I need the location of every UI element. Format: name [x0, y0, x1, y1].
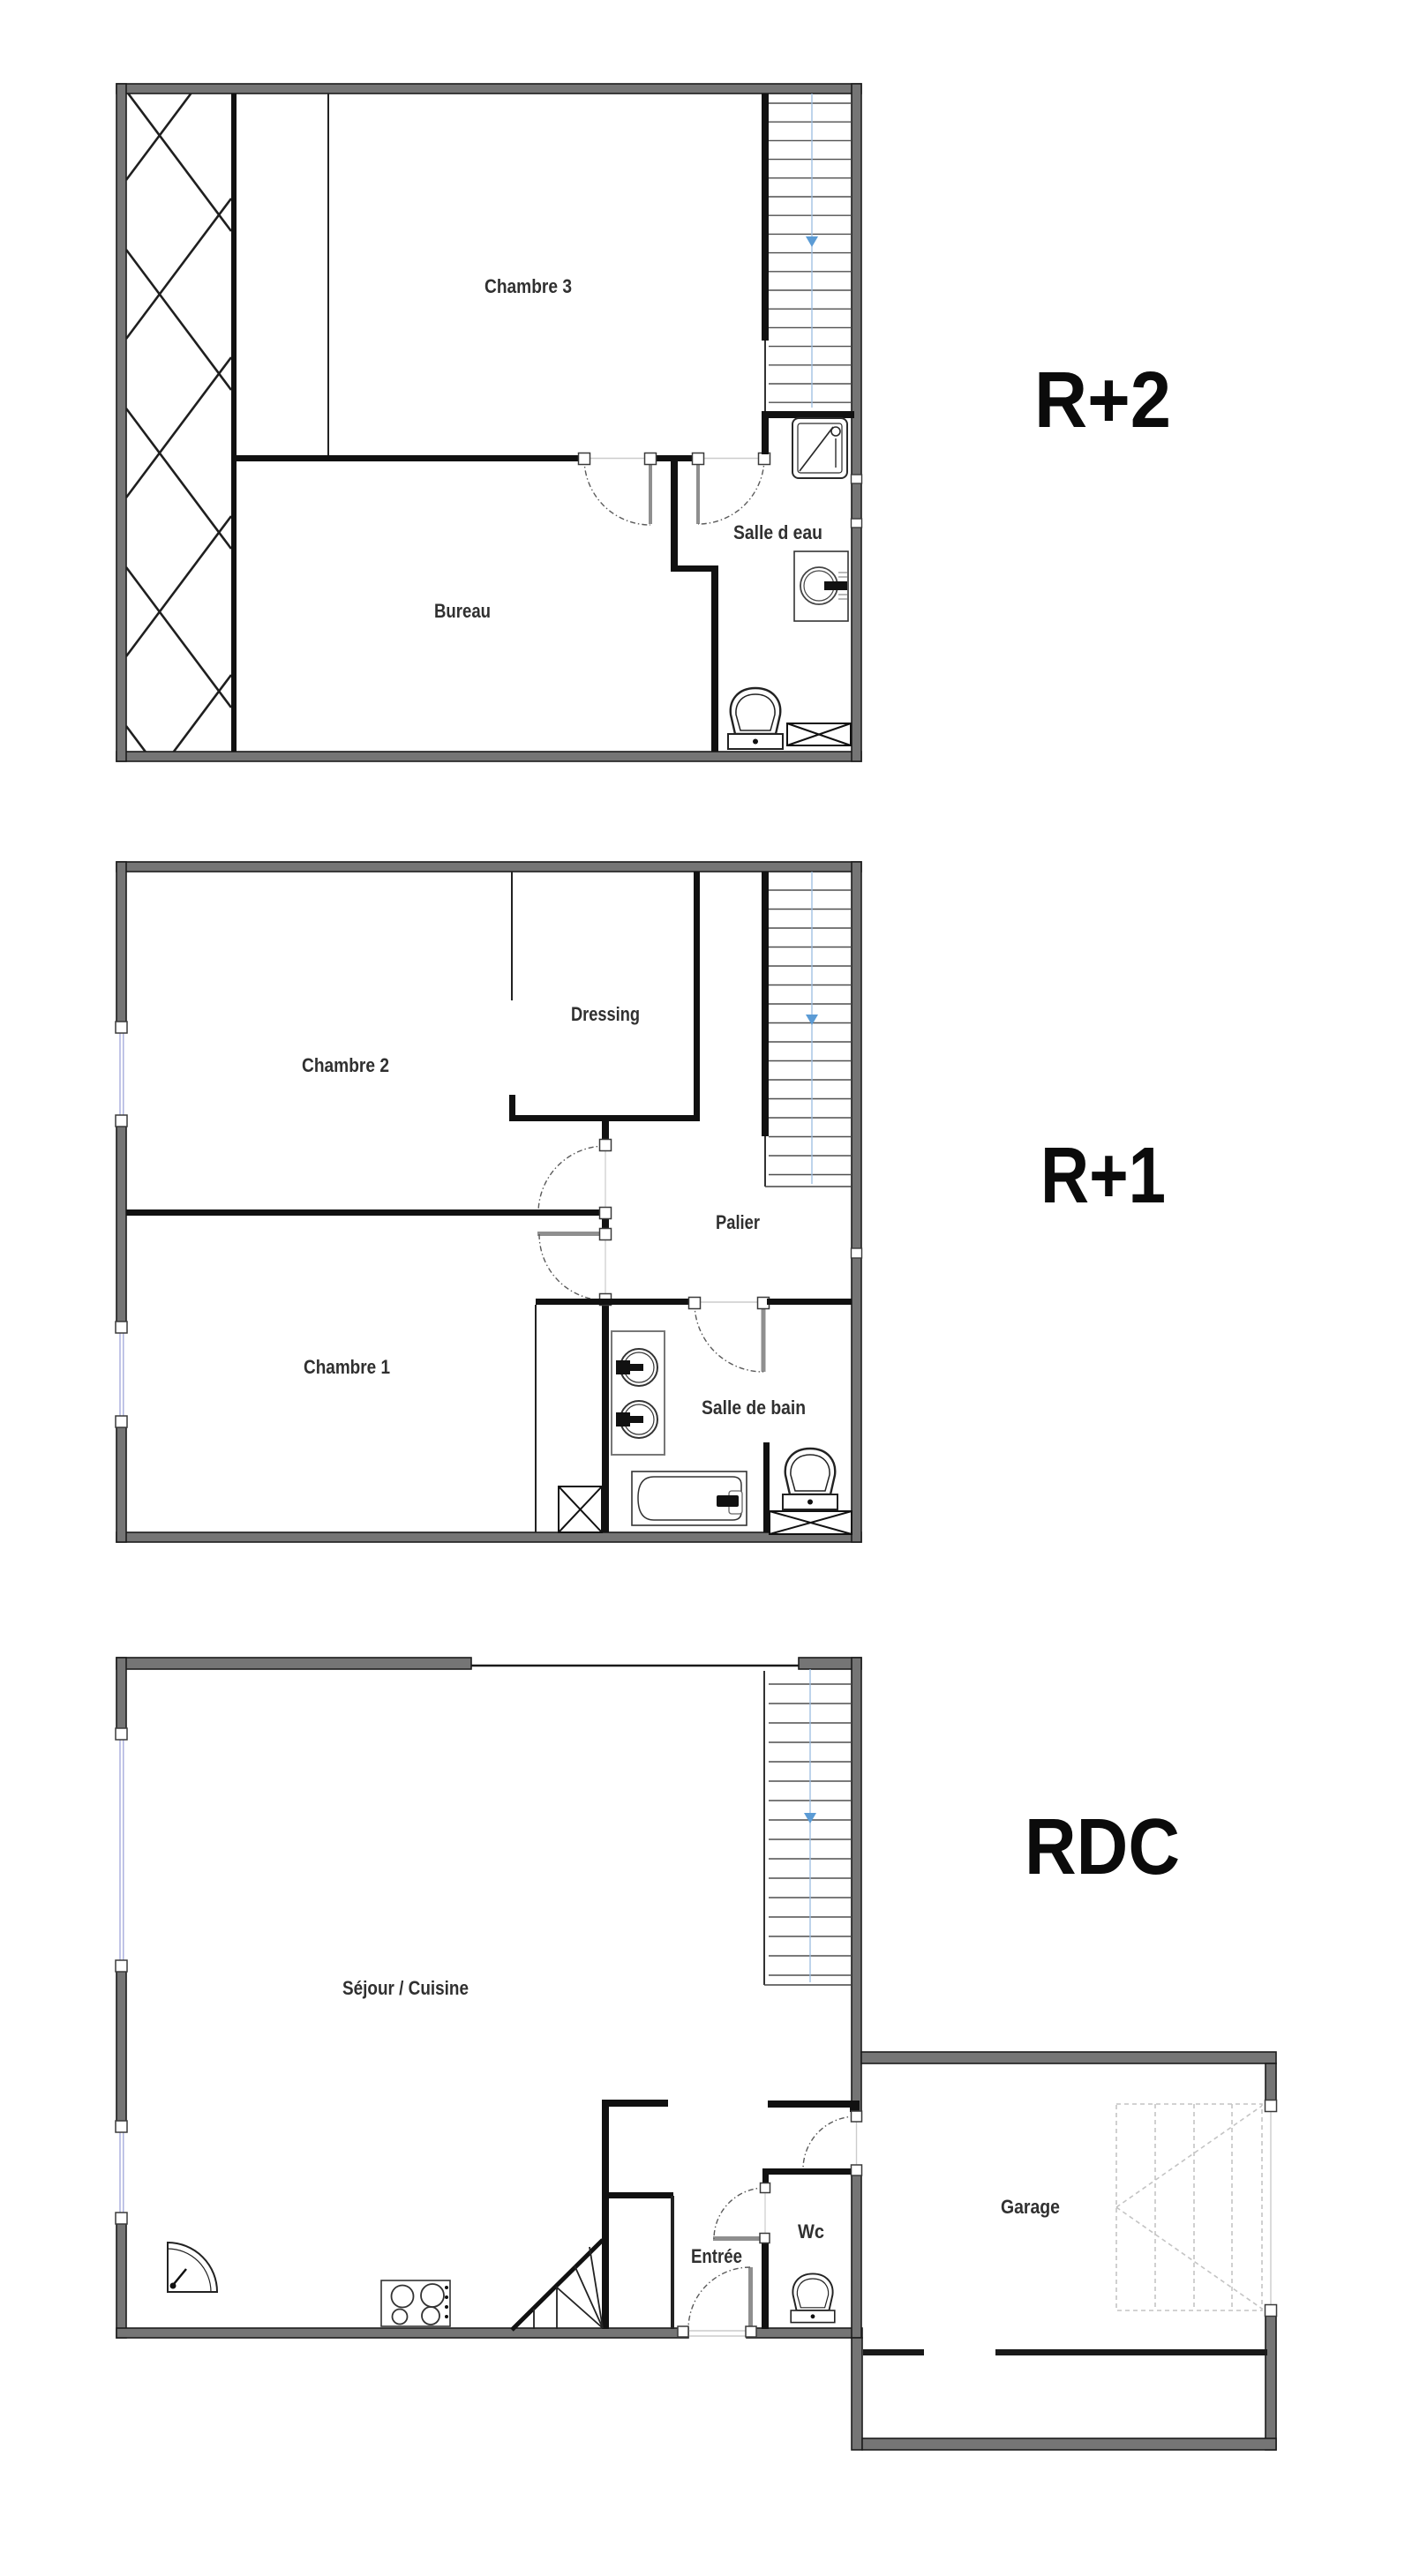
svg-text:Wc: Wc	[798, 2220, 824, 2243]
svg-text:Chambre 2: Chambre 2	[302, 1054, 389, 1076]
svg-text:R+2: R+2	[1034, 356, 1171, 445]
svg-text:Chambre 3: Chambre 3	[484, 275, 572, 297]
svg-text:Salle de bain: Salle de bain	[702, 1397, 806, 1419]
svg-text:Garage: Garage	[1001, 2196, 1060, 2218]
svg-text:Chambre 1: Chambre 1	[304, 1356, 390, 1378]
svg-text:Bureau: Bureau	[434, 600, 491, 622]
svg-text:Dressing: Dressing	[571, 1003, 640, 1025]
svg-text:Séjour / Cuisine: Séjour / Cuisine	[342, 1977, 469, 1999]
svg-text:Palier: Palier	[716, 1211, 760, 1233]
svg-text:Salle d eau: Salle d eau	[733, 521, 822, 543]
svg-text:Entrée: Entrée	[691, 2245, 742, 2267]
svg-text:RDC: RDC	[1025, 1803, 1180, 1891]
svg-text:R+1: R+1	[1040, 1132, 1166, 1220]
